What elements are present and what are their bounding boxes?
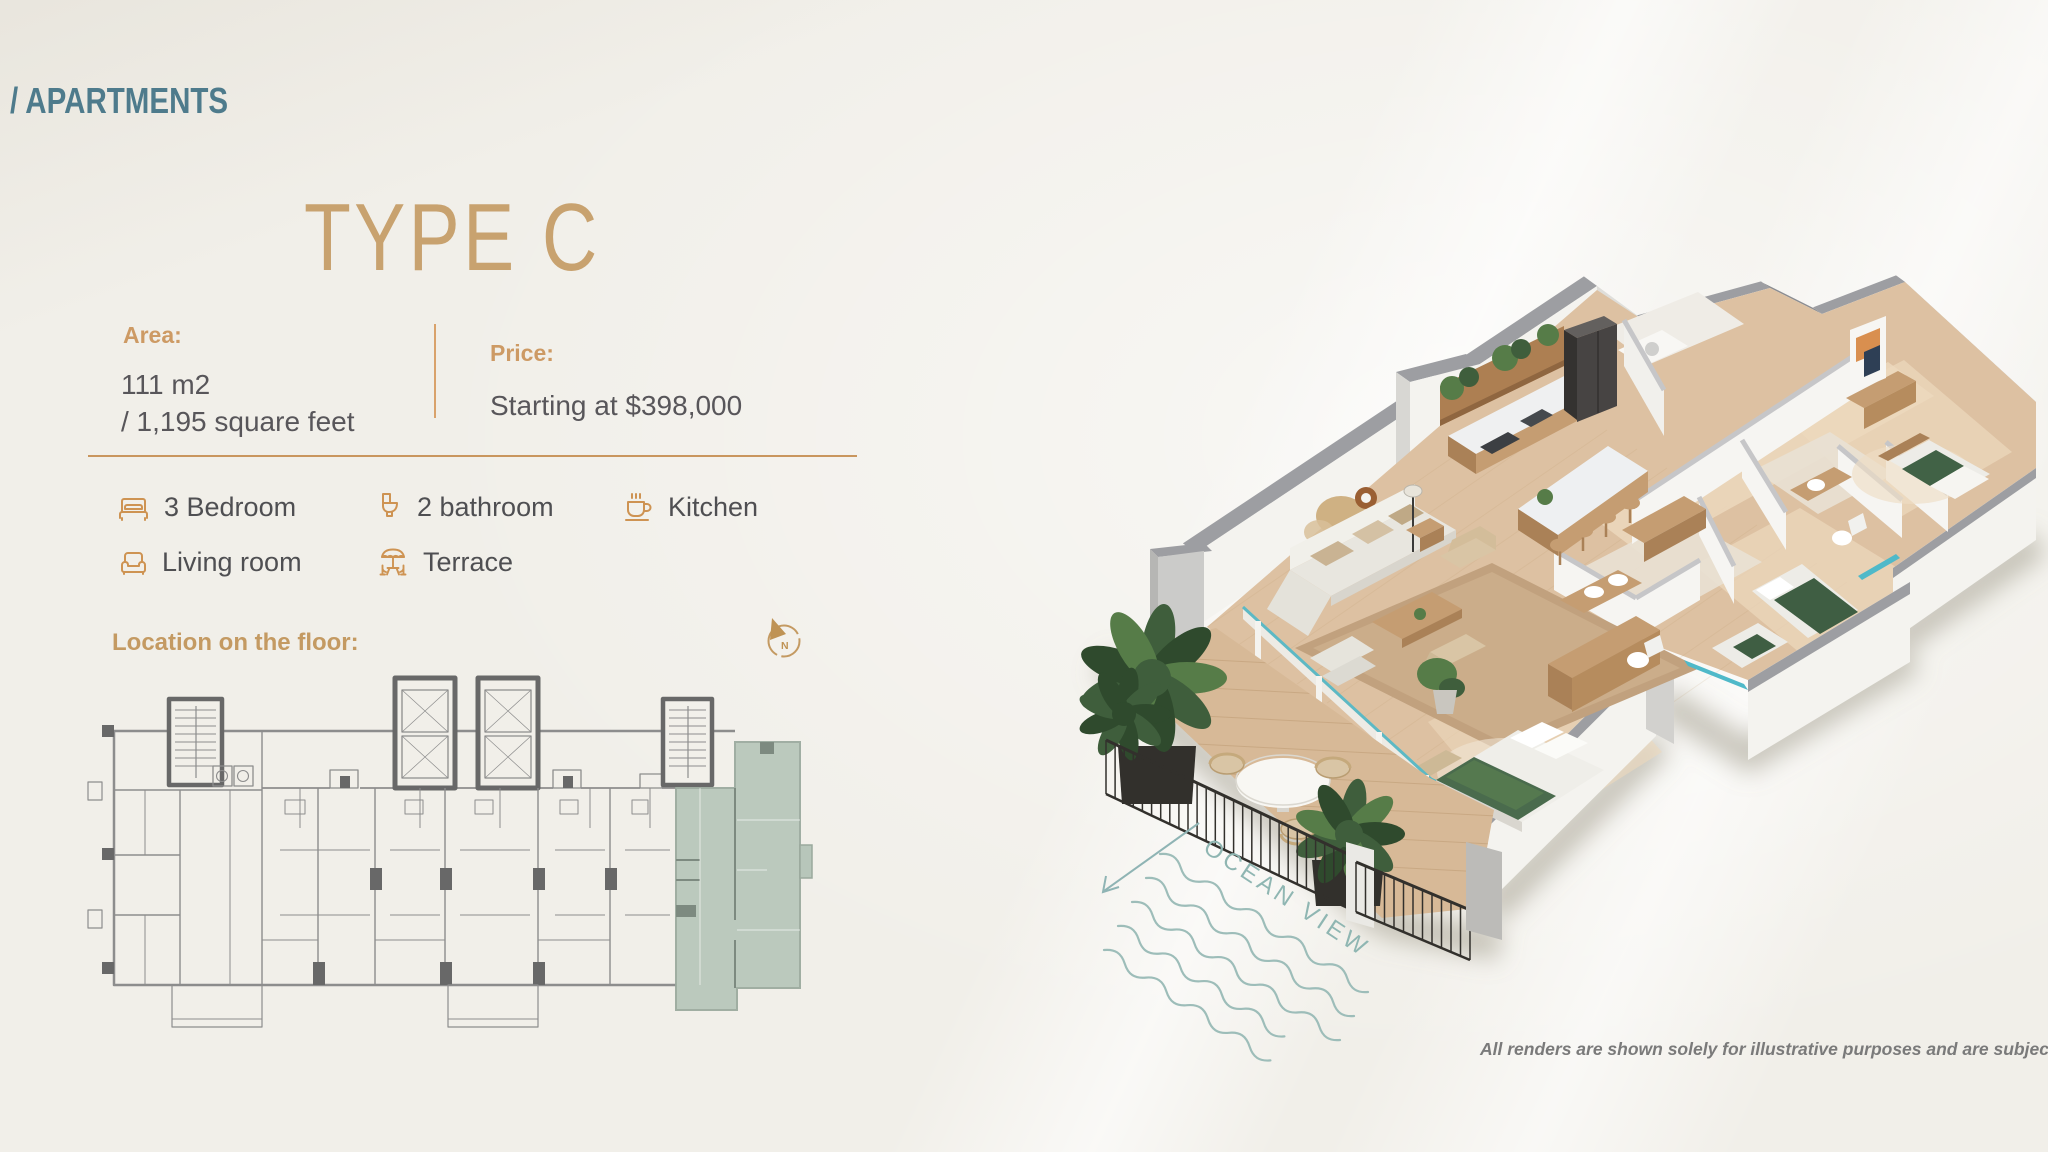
svg-text:N: N	[781, 640, 789, 652]
